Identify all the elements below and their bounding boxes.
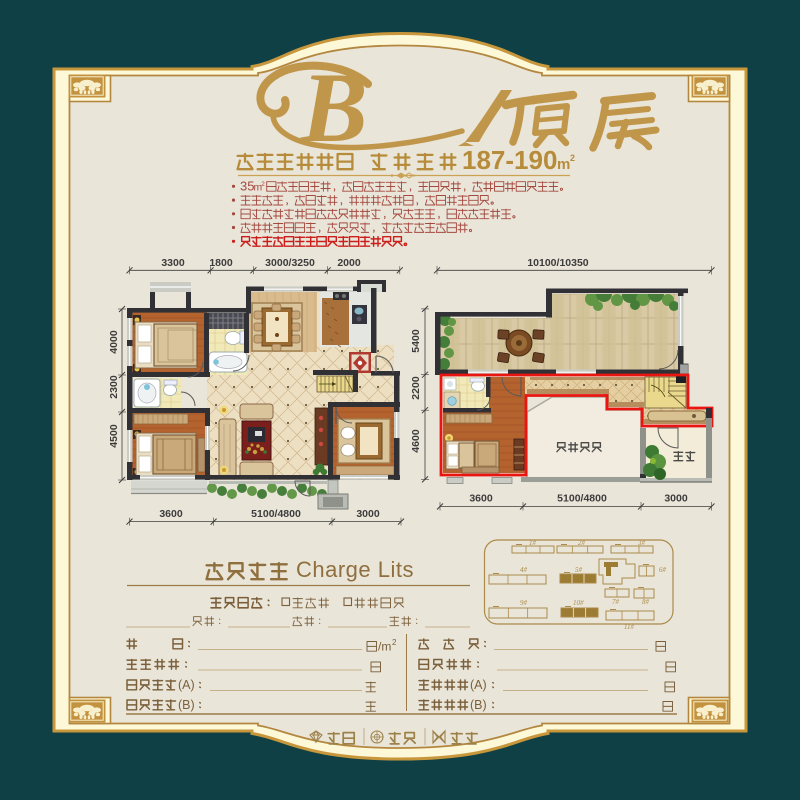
svg-text:Charge Lits: Charge Lits	[296, 557, 414, 582]
svg-text:9#: 9#	[520, 599, 528, 607]
svg-text:10#: 10#	[573, 599, 584, 607]
svg-text:3#: 3#	[637, 539, 646, 547]
svg-text:10100/10350: 10100/10350	[527, 257, 588, 269]
svg-text:6#: 6#	[659, 566, 667, 574]
svg-text:5400: 5400	[410, 329, 422, 353]
svg-text:2: 2	[570, 153, 575, 163]
svg-text:8#: 8#	[642, 598, 650, 606]
svg-text:1800: 1800	[209, 257, 233, 269]
svg-text:2300: 2300	[108, 375, 120, 399]
svg-text:2#: 2#	[578, 539, 586, 547]
svg-text:5100/4800: 5100/4800	[557, 493, 607, 505]
svg-text:1#: 1#	[529, 539, 537, 547]
svg-text:(B): (B)	[178, 698, 195, 712]
svg-text:4500: 4500	[108, 424, 120, 448]
svg-text:(B): (B)	[470, 698, 487, 712]
svg-text:11#: 11#	[624, 623, 634, 631]
svg-text:35: 35	[240, 179, 254, 194]
svg-text:5100/4800: 5100/4800	[251, 508, 301, 520]
svg-text:3600: 3600	[159, 508, 183, 520]
svg-text:4000: 4000	[108, 330, 120, 354]
svg-text:(A): (A)	[178, 678, 195, 692]
svg-text:(A): (A)	[470, 678, 487, 692]
svg-text:3600: 3600	[469, 493, 493, 505]
svg-text:7#: 7#	[612, 598, 620, 606]
svg-text:3000: 3000	[664, 493, 688, 505]
svg-text:2: 2	[392, 638, 397, 647]
svg-text:m: m	[557, 156, 570, 173]
svg-text:3000/3250: 3000/3250	[265, 257, 315, 269]
svg-text:3000: 3000	[356, 508, 380, 520]
svg-text:/m: /m	[378, 640, 391, 654]
svg-text:2200: 2200	[410, 376, 422, 400]
svg-text:2: 2	[261, 181, 265, 188]
svg-text:4#: 4#	[520, 566, 528, 574]
svg-text:3300: 3300	[161, 257, 185, 269]
svg-text:4600: 4600	[410, 429, 422, 453]
svg-text:187-190: 187-190	[462, 145, 557, 175]
svg-text:2000: 2000	[337, 257, 361, 269]
svg-text:5#: 5#	[575, 566, 583, 574]
